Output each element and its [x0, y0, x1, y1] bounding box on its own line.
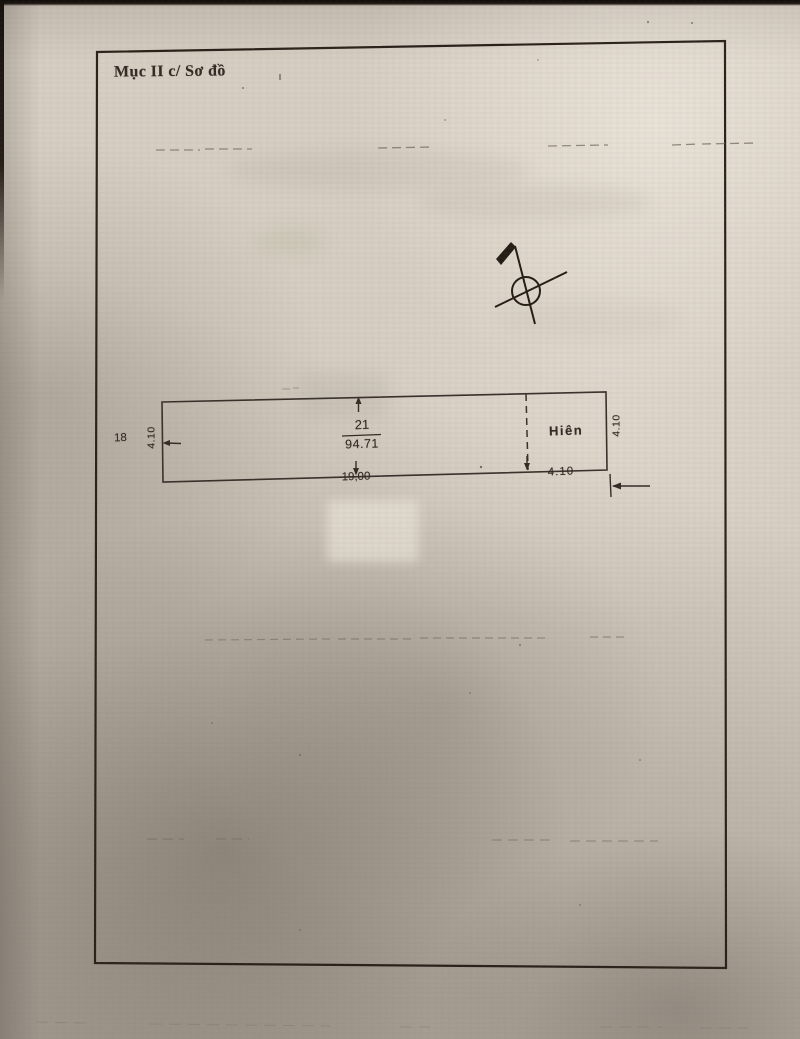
- left-width-arrowhead: [163, 440, 171, 446]
- neighbor-parcel-label: 18: [114, 432, 138, 445]
- faded-dotted-rule-bottom-outside: [36, 1022, 748, 1028]
- porch-bottom-arrowhead: [524, 463, 530, 471]
- sketch-linework: [0, 0, 800, 1039]
- form-border-frame: [95, 41, 726, 968]
- paper-specks: [211, 21, 693, 931]
- parcel-area-label: 94.71: [336, 436, 388, 452]
- faded-dotted-rule-top: [156, 143, 756, 150]
- north-arrow-flag: [496, 242, 516, 265]
- faded-dotted-rule-middle: [205, 637, 625, 640]
- parcel-number-label: 21: [340, 416, 384, 432]
- dimension-bottom-porch-width: 4.10: [541, 465, 581, 478]
- dimension-marks: [163, 397, 651, 498]
- stray-tick-mark: [480, 466, 482, 468]
- dimension-bottom-length: 19,00: [334, 470, 378, 483]
- dimension-right-width: 4.10: [611, 406, 624, 446]
- right-leader-arrowhead: [612, 483, 621, 490]
- faded-dotted-rule-lower: [147, 839, 658, 841]
- right-corner-tick: [610, 474, 611, 497]
- photographed-document: Mục II c/ Sơ đồ 21 94.71 Hiên 18 4.10 4.…: [0, 0, 800, 1039]
- dimension-left-width: 4.10: [146, 418, 159, 458]
- porch-label: Hiên: [549, 423, 584, 439]
- north-arrow-stem: [515, 246, 535, 324]
- north-arrow-icon: [495, 242, 567, 324]
- section-title: Mục II c/ Sơ đồ: [114, 62, 226, 81]
